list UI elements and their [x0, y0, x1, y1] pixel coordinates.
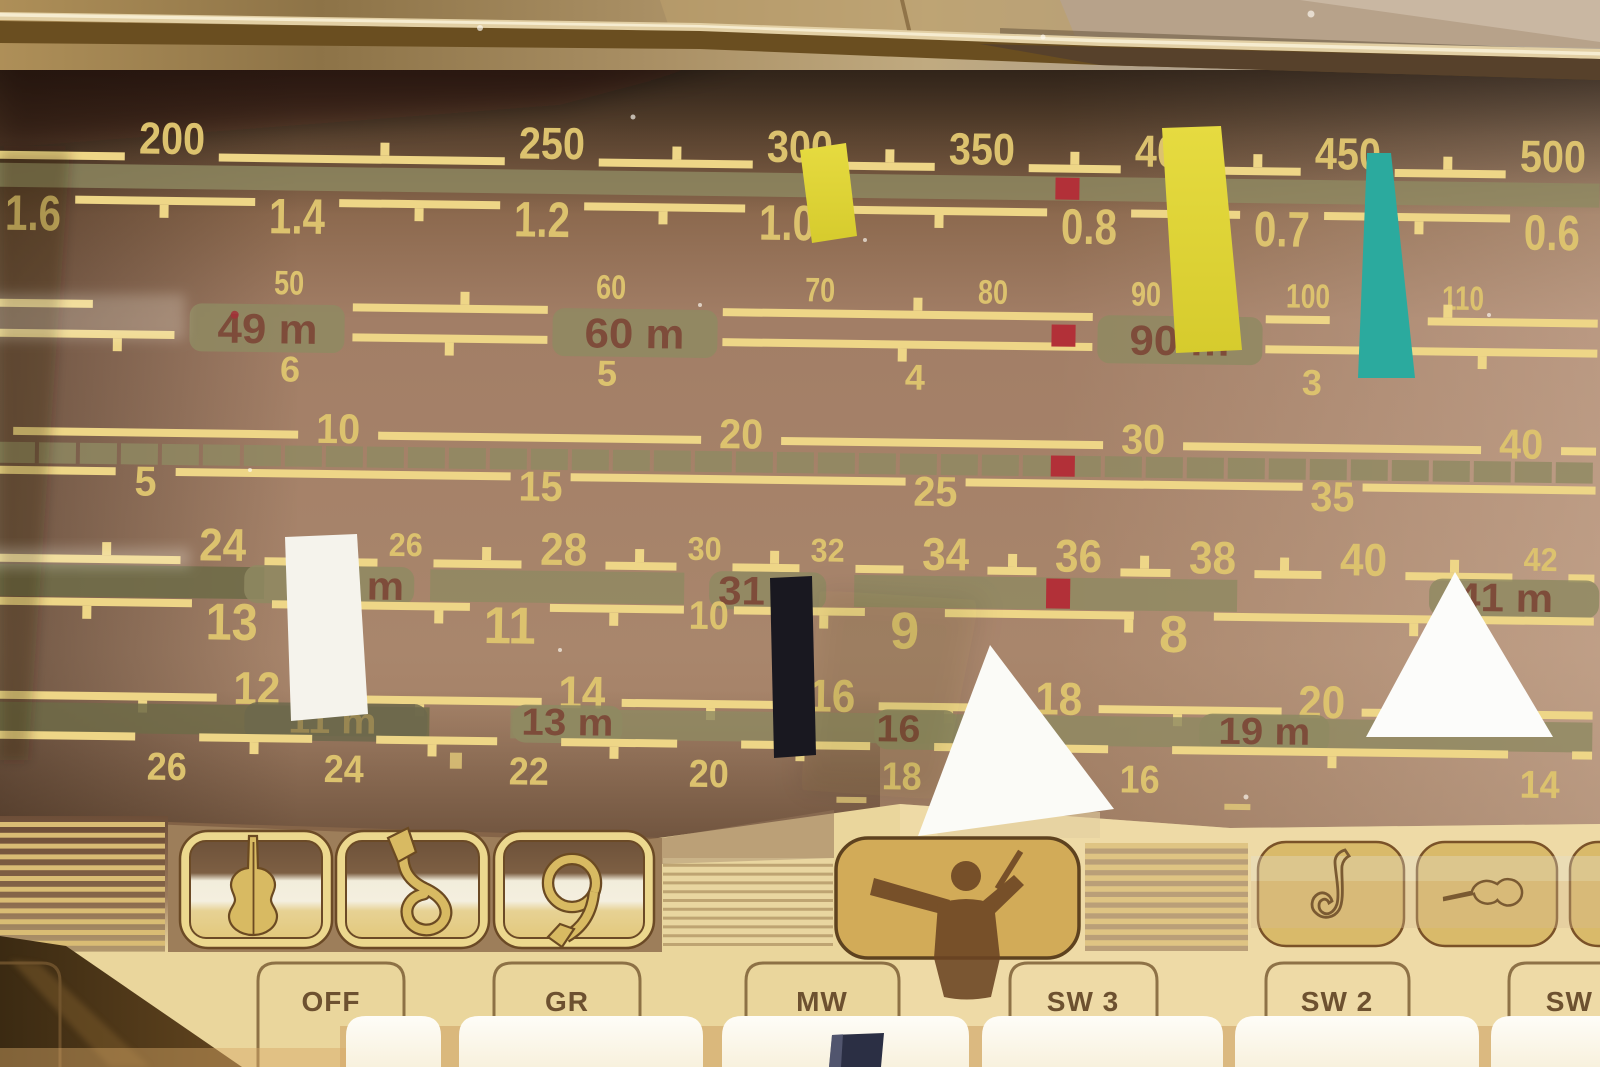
svg-text:25: 25 — [913, 468, 958, 516]
svg-text:GR: GR — [545, 986, 589, 1017]
svg-text:60 m: 60 m — [584, 309, 685, 357]
svg-text:13: 13 — [205, 593, 258, 652]
svg-text:0.6: 0.6 — [1524, 205, 1581, 262]
svg-text:42: 42 — [1523, 541, 1557, 578]
svg-text:30: 30 — [1121, 415, 1166, 463]
svg-text:8: 8 — [1159, 606, 1189, 664]
svg-text:35: 35 — [1310, 473, 1355, 521]
svg-text:28: 28 — [540, 523, 588, 576]
svg-text:16: 16 — [1119, 758, 1160, 802]
svg-text:MW: MW — [796, 986, 848, 1017]
svg-text:3: 3 — [1302, 362, 1323, 403]
svg-text:30: 30 — [687, 530, 721, 567]
svg-text:40: 40 — [1499, 420, 1544, 468]
svg-text:10: 10 — [689, 594, 730, 639]
svg-text:26: 26 — [388, 526, 422, 563]
svg-text:OFF: OFF — [302, 986, 361, 1017]
svg-text:100: 100 — [1286, 278, 1330, 317]
svg-text:10: 10 — [316, 405, 361, 453]
svg-text:0.8: 0.8 — [1061, 199, 1118, 256]
svg-text:5: 5 — [597, 353, 618, 394]
svg-text:SW 2: SW 2 — [1301, 986, 1373, 1017]
svg-text:1.4: 1.4 — [269, 188, 326, 245]
svg-text:38: 38 — [1189, 531, 1237, 584]
svg-text:60: 60 — [596, 269, 626, 307]
svg-text:200: 200 — [139, 113, 206, 165]
svg-text:14: 14 — [1519, 764, 1560, 808]
svg-text:70: 70 — [805, 271, 835, 309]
svg-text:90: 90 — [1131, 276, 1161, 314]
svg-text:0.7: 0.7 — [1254, 201, 1311, 258]
svg-text:40: 40 — [1340, 533, 1388, 586]
svg-text:5: 5 — [134, 457, 157, 504]
svg-text:26: 26 — [147, 746, 188, 790]
svg-text:32: 32 — [810, 531, 844, 568]
svg-text:350: 350 — [949, 123, 1016, 175]
svg-text:36: 36 — [1055, 530, 1103, 583]
svg-text:4: 4 — [905, 357, 926, 398]
svg-text:34: 34 — [922, 528, 970, 581]
svg-text:50: 50 — [274, 264, 304, 302]
svg-text:250: 250 — [519, 117, 586, 169]
svg-text:22: 22 — [508, 750, 549, 794]
svg-text:11: 11 — [483, 597, 536, 656]
svg-text:SW 3: SW 3 — [1047, 986, 1119, 1017]
svg-text:24: 24 — [199, 518, 247, 571]
svg-text:15: 15 — [518, 463, 563, 511]
svg-text:80: 80 — [978, 274, 1008, 312]
svg-text:24: 24 — [323, 748, 364, 792]
svg-text:20: 20 — [719, 410, 764, 458]
svg-text:20: 20 — [688, 753, 729, 797]
svg-text:6: 6 — [280, 348, 301, 389]
svg-text:1.2: 1.2 — [514, 191, 571, 248]
svg-text:500: 500 — [1520, 131, 1587, 183]
svg-text:1.0: 1.0 — [759, 195, 816, 252]
svg-text:SW 1: SW 1 — [1546, 986, 1600, 1017]
